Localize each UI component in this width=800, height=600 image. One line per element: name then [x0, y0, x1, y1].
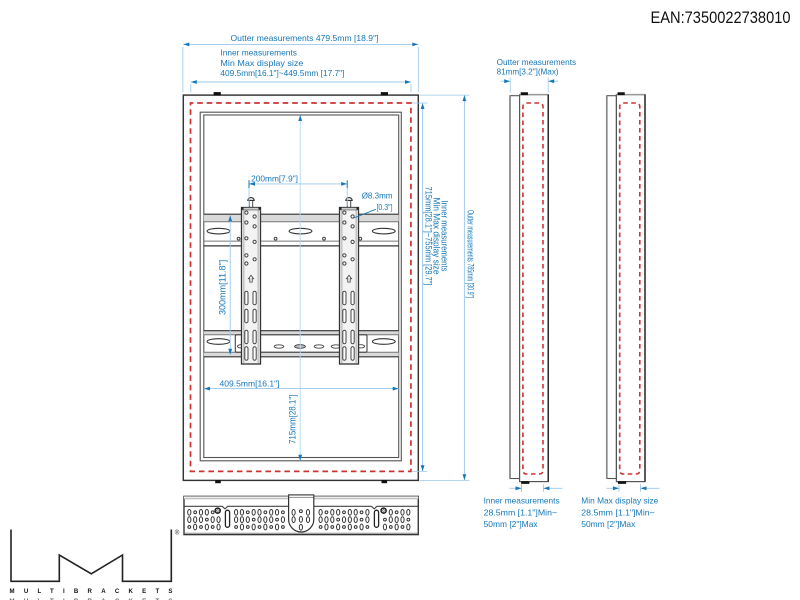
svg-text:MULTIBRACKETS: MULTIBRACKETS	[10, 588, 173, 595]
svg-text:28.5mm [1.1"]Min~: 28.5mm [1.1"]Min~	[484, 507, 558, 517]
svg-text:50mm [2"]Max: 50mm [2"]Max	[581, 519, 636, 529]
svg-text:715mm[28.1"]~755mm [29.7"]: 715mm[28.1"]~755mm [29.7"]	[423, 187, 433, 286]
svg-text:200mm[7.9"]: 200mm[7.9"]	[251, 173, 298, 183]
svg-text:Min Max display size: Min Max display size	[220, 58, 303, 68]
svg-text:Outter measurements 785mm [30.: Outter measurements 785mm [30.9"]	[465, 210, 475, 298]
svg-text:Min Max display size: Min Max display size	[581, 496, 658, 506]
svg-text:81mm[3.2"](Max): 81mm[3.2"](Max)	[497, 67, 559, 77]
svg-text:715mm[28.1"]: 715mm[28.1"]	[287, 395, 297, 445]
svg-text:®: ®	[175, 529, 180, 536]
svg-text:300mm[11.8"]: 300mm[11.8"]	[217, 260, 227, 315]
svg-text:Outter measurements: Outter measurements	[497, 57, 576, 67]
svg-text:28.5mm [1.1"]Min~: 28.5mm [1.1"]Min~	[581, 507, 655, 517]
svg-text:Inner measurements: Inner measurements	[484, 496, 560, 506]
svg-text:409.5mm[16.1"]: 409.5mm[16.1"]	[220, 378, 280, 388]
svg-text:50mm [2"]Max: 50mm [2"]Max	[484, 519, 539, 529]
svg-text:EAN:7350022738010: EAN:7350022738010	[651, 9, 791, 27]
svg-text:Inner measurements: Inner measurements	[220, 47, 297, 57]
svg-text:[0.3"]: [0.3"]	[377, 202, 393, 212]
svg-text:Outter measurements 479.5mm [1: Outter measurements 479.5mm [18.9"]	[231, 33, 379, 43]
svg-text:409.5mm[16.1"]~449.5mm [17.7"]: 409.5mm[16.1"]~449.5mm [17.7"]	[220, 68, 344, 78]
svg-text:Ø8.3mm: Ø8.3mm	[362, 190, 393, 200]
